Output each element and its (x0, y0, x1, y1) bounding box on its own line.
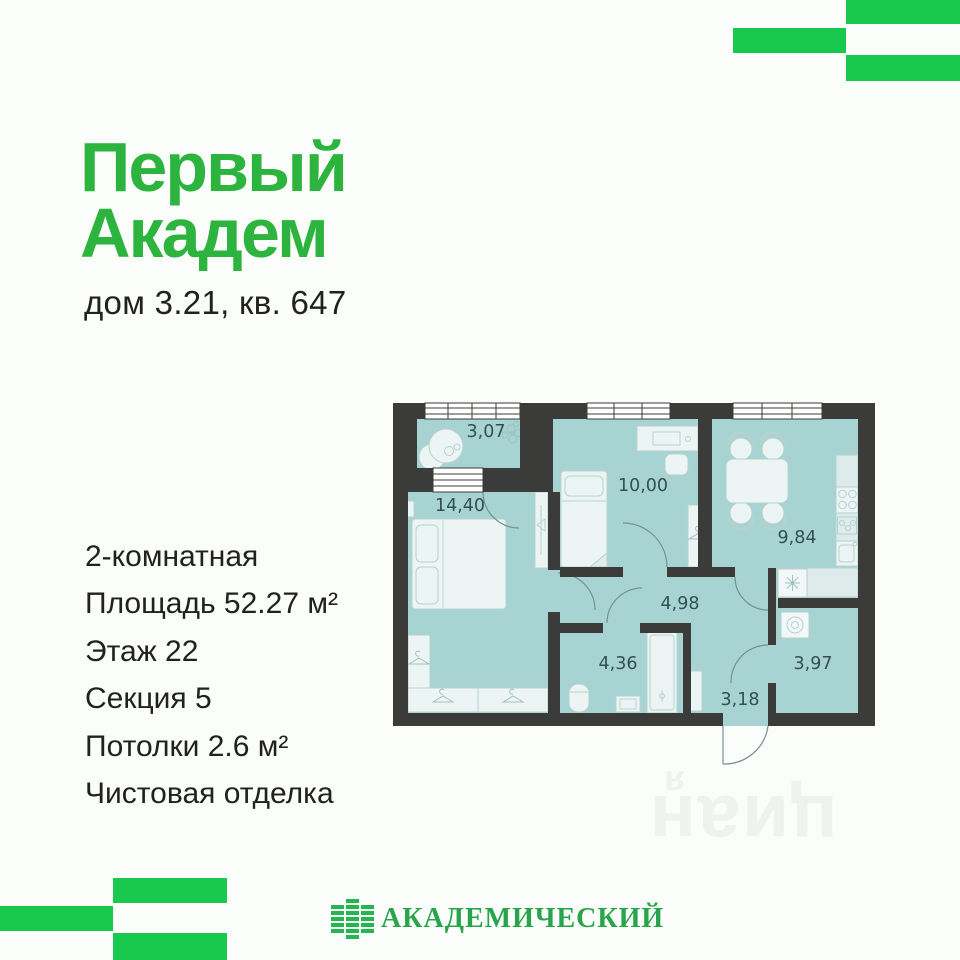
balcony-window (425, 403, 520, 419)
room-label-bedroom-2: 10,00 (618, 476, 668, 496)
bath-sink-icon (616, 696, 640, 712)
project-title: Первый Академ (80, 134, 346, 266)
detail-ceiling: Потолки 2.6 м² (85, 723, 338, 771)
listing-card: Первый Академ дом 3.21, кв. 647 2-комнат… (0, 0, 960, 960)
apartment-details-list: 2-комнатная Площадь 52.27 м² Этаж 22 Сек… (85, 533, 338, 818)
room-label-bathroom: 4,36 (599, 654, 638, 674)
brand-block-top-right-2 (733, 28, 846, 53)
room-label-storage: 3,97 (794, 654, 833, 674)
floor-plan: 3,07 14,40 10,00 9,84 4,98 4,36 3,97 3,1… (385, 395, 880, 780)
room-label-hallway: 4,98 (661, 594, 700, 614)
desk-icon (637, 426, 698, 451)
apartment-subtitle: дом 3.21, кв. 647 (84, 284, 347, 322)
detail-section: Секция 5 (85, 676, 338, 724)
wardrobe-icon (408, 688, 478, 712)
bedroom-mirror-icon (535, 492, 548, 568)
project-title-line2: Академ (80, 200, 346, 266)
room-label-entry: 3,18 (721, 690, 760, 710)
wardrobe-icon (478, 688, 548, 712)
dining-table-icon (726, 459, 788, 503)
balcony-sill-window (433, 468, 483, 492)
brand-block-bottom-left-1 (113, 878, 227, 903)
fridge-icon (778, 569, 807, 597)
single-bed-icon (561, 471, 607, 567)
kitchen-window (733, 403, 822, 419)
kitchen-sink-icon (836, 541, 858, 566)
room-label-balcony: 3,07 (467, 422, 506, 442)
double-bed-icon (412, 519, 506, 609)
developer-logo-icon (330, 897, 376, 943)
shower-icon (647, 632, 677, 713)
brand-block-top-right-1 (846, 0, 960, 24)
toilet-icon (569, 684, 589, 712)
detail-finish: Чистовая отделка (85, 771, 338, 819)
closet-icon (408, 635, 430, 688)
room-label-bedroom: 14,40 (435, 496, 485, 516)
detail-floor: Этаж 22 (85, 628, 338, 676)
project-title-line1: Первый (80, 134, 346, 200)
room-label-kitchen: 9,84 (778, 528, 817, 548)
detail-area: Площадь 52.27 м² (85, 581, 338, 629)
brand-block-top-right-3 (846, 55, 960, 81)
brand-block-bottom-left-2 (0, 906, 113, 931)
developer-logo-text: АКАДЕМИЧЕСКИЙ (381, 903, 664, 935)
brand-block-bottom-left-3 (113, 933, 227, 960)
detail-rooms: 2-комнатная (85, 533, 338, 581)
bedroom2-window (587, 403, 670, 419)
entry-door-arc (723, 726, 768, 764)
washing-machine-icon (781, 612, 809, 638)
cian-watermark-letter: я (664, 762, 685, 804)
